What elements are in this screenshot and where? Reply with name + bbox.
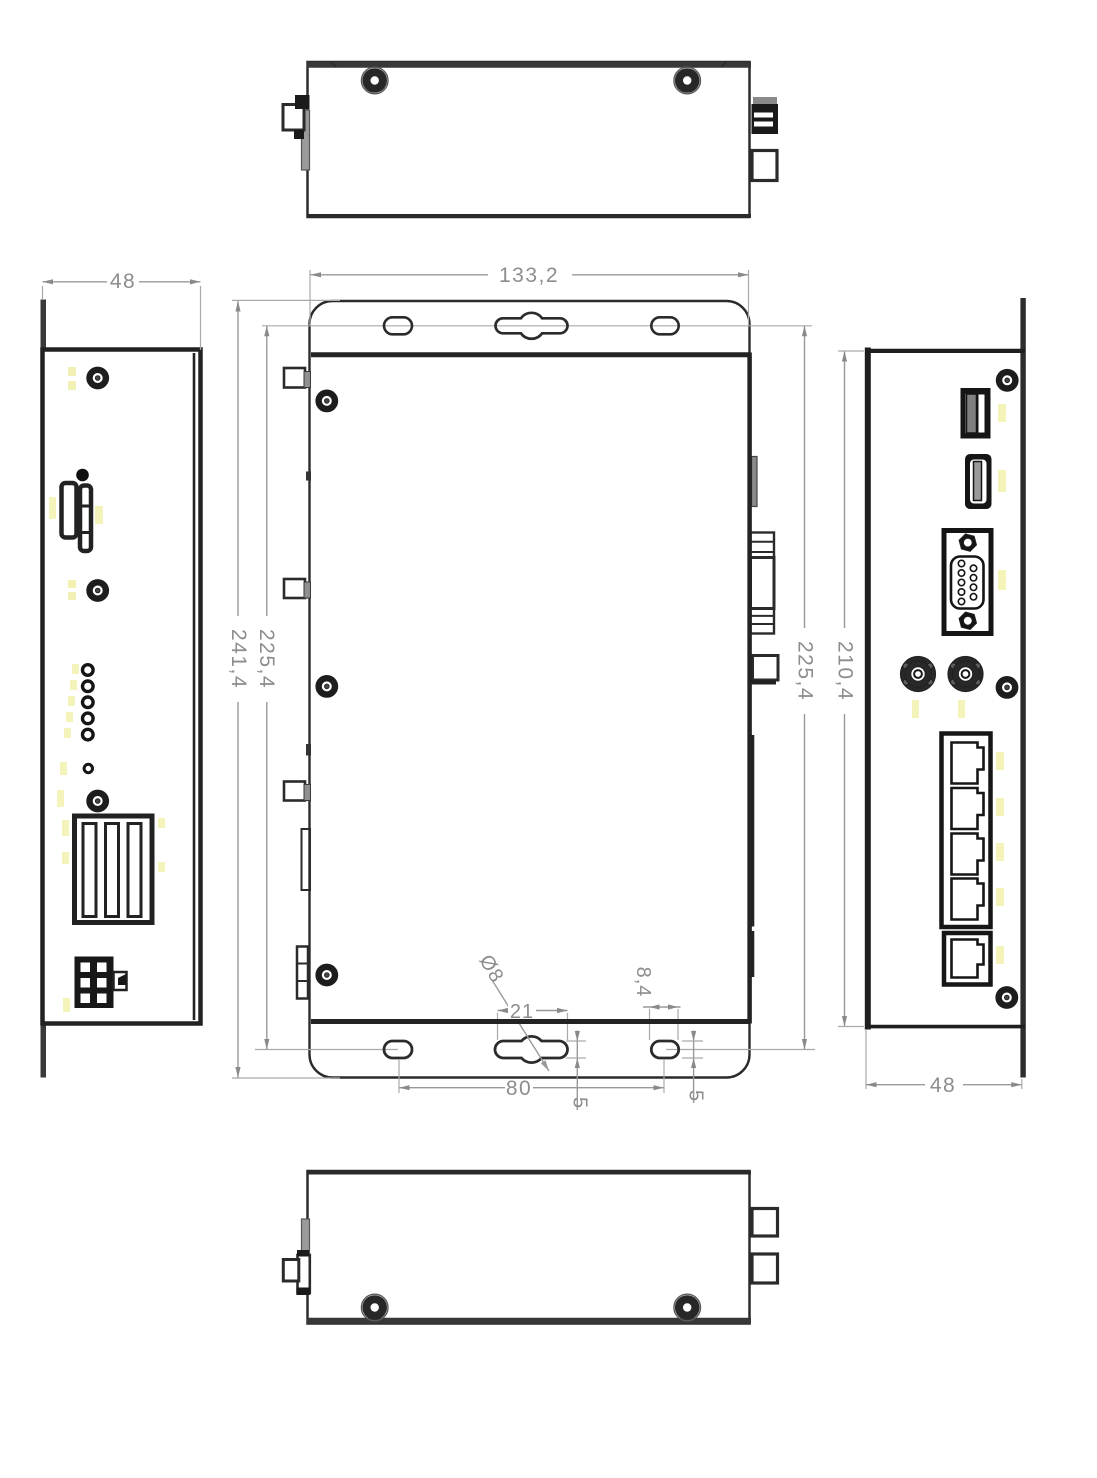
svg-text:80: 80 xyxy=(506,1077,532,1100)
svg-text:225,4: 225,4 xyxy=(255,629,278,689)
svg-text:48: 48 xyxy=(930,1074,956,1097)
svg-text:5: 5 xyxy=(685,1090,707,1102)
svg-text:210,4: 210,4 xyxy=(834,641,857,701)
svg-text:225,4: 225,4 xyxy=(794,641,817,701)
svg-text:48: 48 xyxy=(110,270,136,293)
svg-text:5: 5 xyxy=(569,1097,591,1109)
svg-text:133,2: 133,2 xyxy=(499,264,559,287)
svg-text:241,4: 241,4 xyxy=(227,629,250,689)
svg-text:8,4: 8,4 xyxy=(632,967,654,998)
